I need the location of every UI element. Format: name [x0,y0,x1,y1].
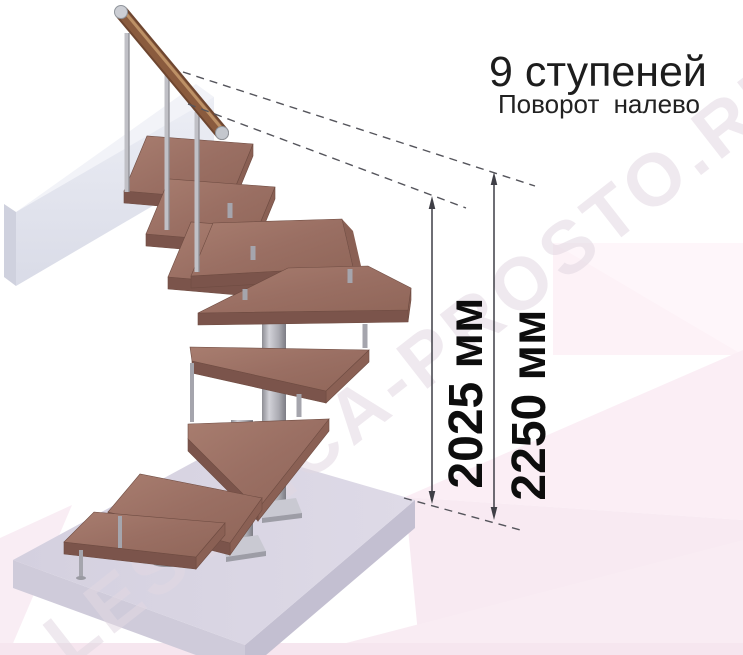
rod-foot [76,576,86,580]
title-block: 9 ступеней Поворот налево [489,48,707,119]
handrail-end-cap [216,127,229,140]
dimension-label-2250: 2250 мм [503,309,556,500]
staircase-drawing: LESTNICA-PROSTO.RU LESTNICA-PROSTO.RU [0,0,743,655]
subtitle-turn-direction: Поворот налево [498,89,700,119]
staircase-product-illustration: LESTNICA-PROSTO.RU LESTNICA-PROSTO.RU [0,0,743,655]
handrail-end-cap [115,6,128,19]
dimension-label-2025: 2025 мм [440,297,493,488]
